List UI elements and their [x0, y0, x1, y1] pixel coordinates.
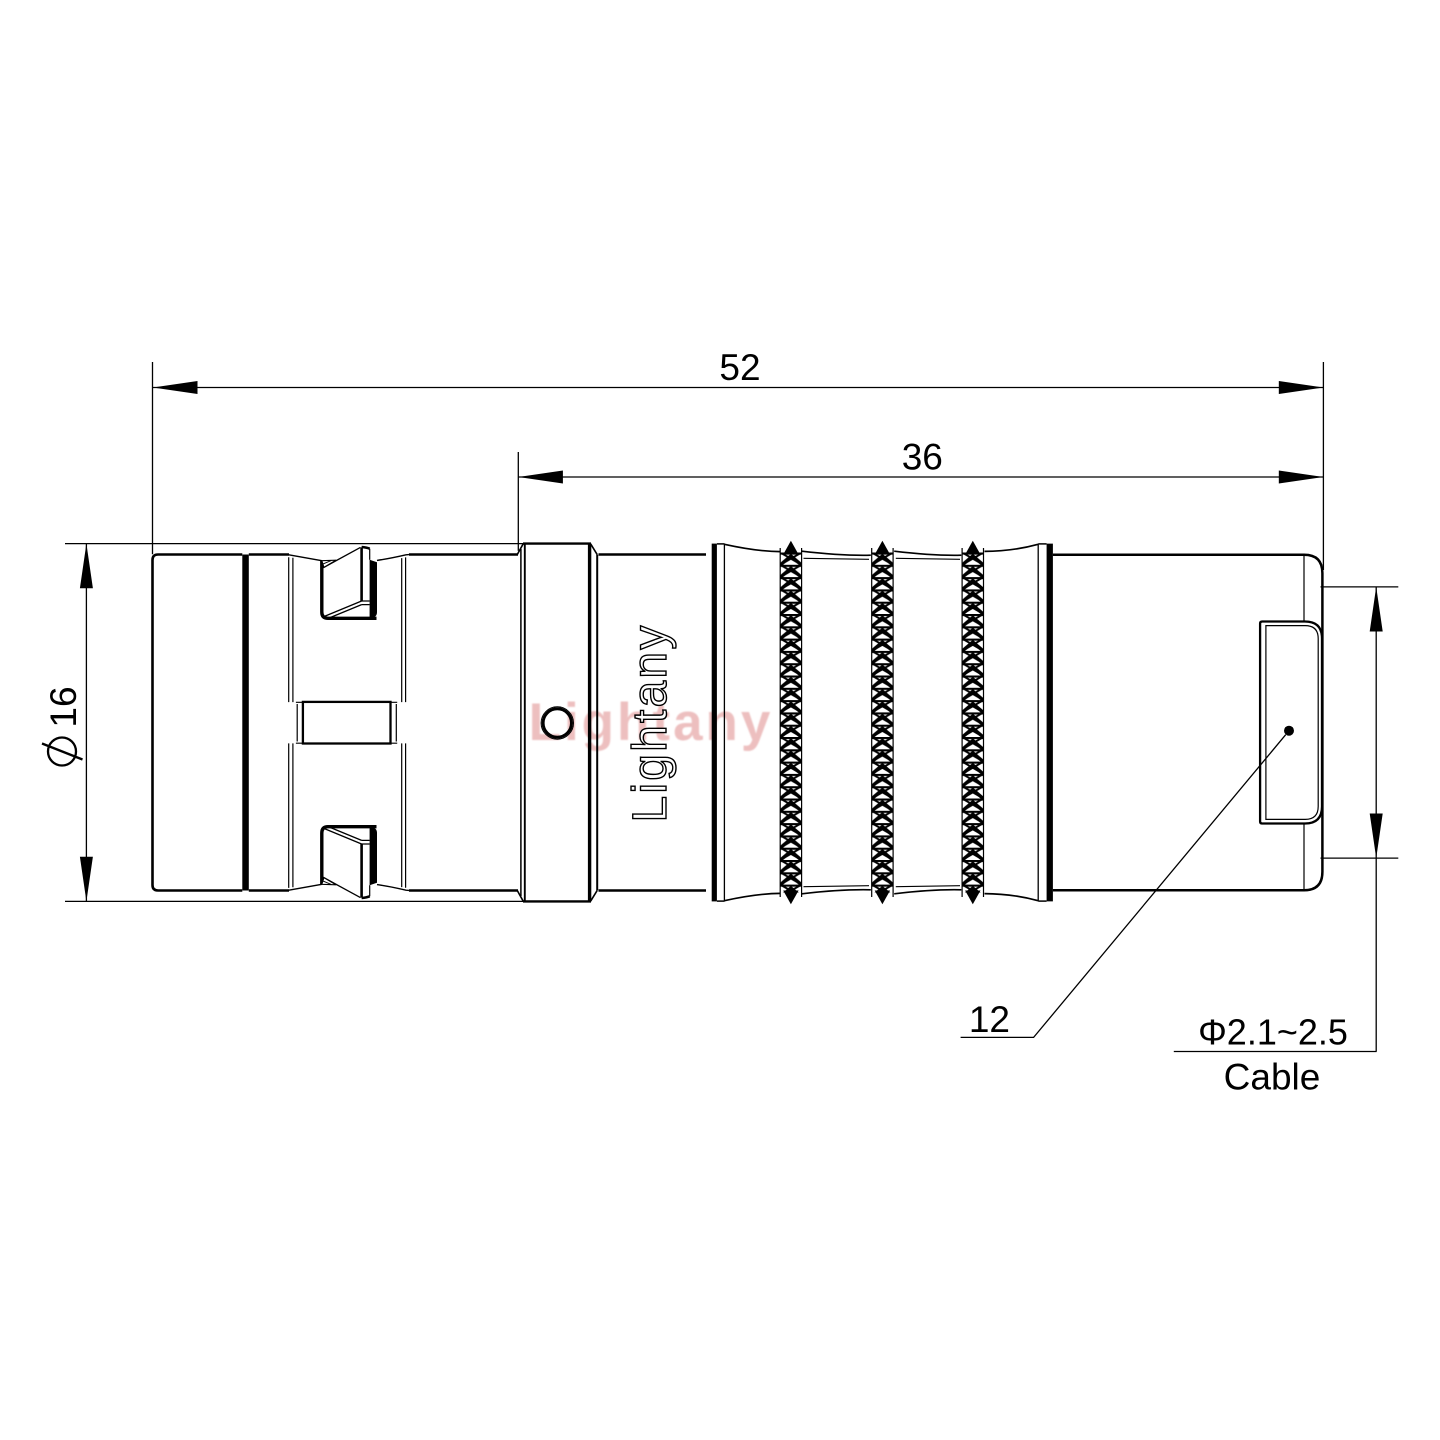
svg-text:52: 52 — [719, 347, 760, 388]
svg-text:12: 12 — [969, 999, 1010, 1040]
svg-text:16: 16 — [43, 686, 84, 727]
svg-text:Cable: Cable — [1224, 1057, 1321, 1098]
svg-text:36: 36 — [902, 437, 943, 478]
svg-text:Lightany: Lightany — [624, 623, 677, 822]
svg-text:Φ2.1~2.5: Φ2.1~2.5 — [1198, 1012, 1348, 1053]
